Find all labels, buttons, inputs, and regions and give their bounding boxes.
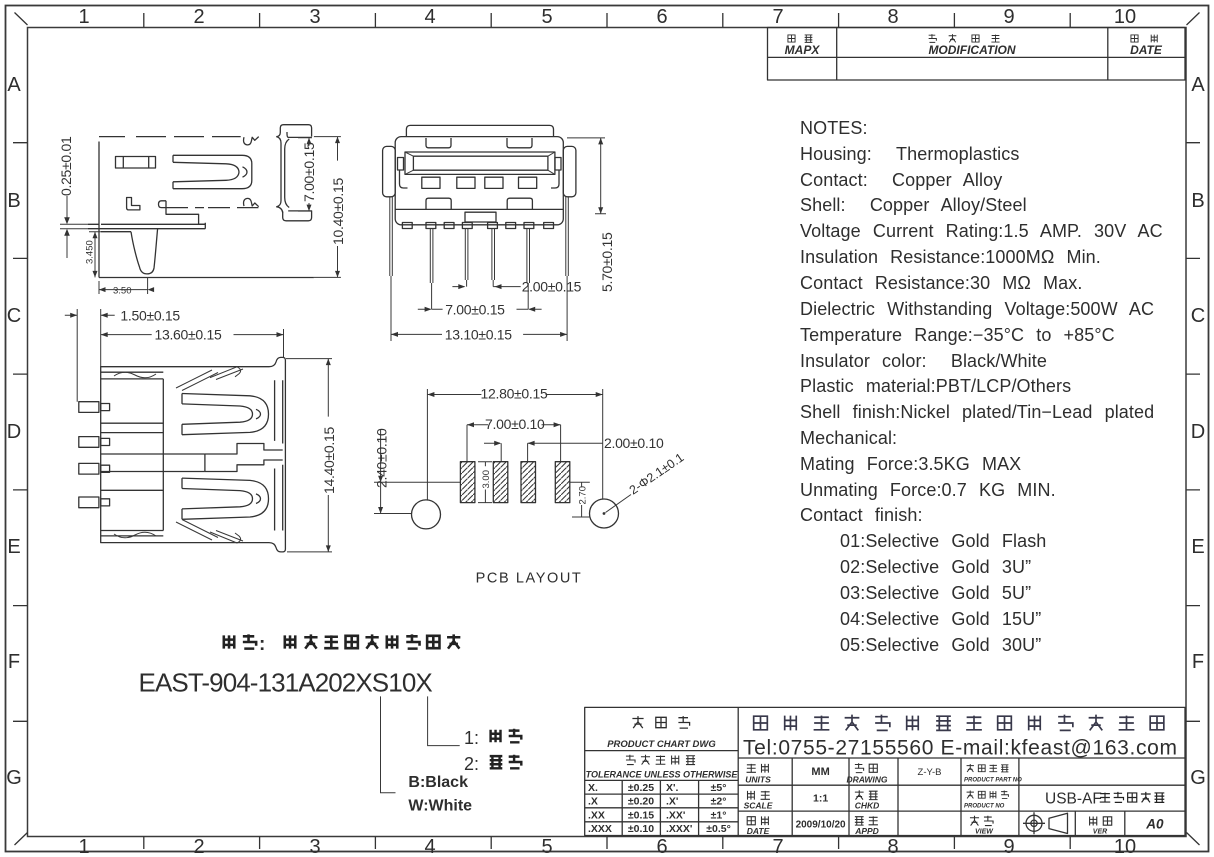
svg-text:EAST-904-131A202XS10X: EAST-904-131A202XS10X [139,668,433,698]
svg-text:±0.15: ±0.15 [628,809,654,821]
svg-text:2.70: 2.70 [578,486,589,505]
svg-text::: : [259,634,265,655]
svg-text:VIEW: VIEW [975,829,994,836]
svg-text:DATE: DATE [747,826,770,836]
svg-text:Insulation Resistance:1000MΩ M: Insulation Resistance:1000MΩ Min. [800,247,1101,267]
svg-text:13.60±0.15: 13.60±0.15 [155,327,222,343]
svg-text:12.80±0.15: 12.80±0.15 [481,386,548,402]
svg-text:±5°: ±5° [711,782,727,794]
svg-text:.XXX: .XXX [588,823,612,835]
svg-text:9: 9 [1003,836,1014,857]
svg-text:D: D [1191,421,1205,443]
svg-text:2:: 2: [464,754,479,774]
svg-text:2.00±0.15: 2.00±0.15 [522,279,582,295]
svg-text:5.70±0.15: 5.70±0.15 [599,232,615,292]
svg-text:Shell: Copper Alloy/Steel: Shell: Copper Alloy/Steel [800,195,1027,215]
svg-text:X'.: X'. [666,782,679,794]
svg-text:0.25±0.01: 0.25±0.01 [58,136,74,196]
svg-text:C: C [7,305,21,327]
svg-text:6: 6 [656,6,667,28]
svg-text:E: E [7,536,20,558]
svg-text:3: 3 [309,6,320,28]
svg-text:Temperature Range:−35°C to +85: Temperature Range:−35°C to +85°C [800,325,1115,345]
svg-text:Z-Y-B: Z-Y-B [918,767,942,778]
svg-text:3: 3 [309,836,320,857]
svg-text:D: D [7,421,21,443]
svg-text:.XX': .XX' [666,809,685,821]
svg-text:±0.10: ±0.10 [628,823,654,835]
svg-text:G: G [6,767,22,789]
svg-text:MODIFICATION: MODIFICATION [928,43,1015,57]
svg-text:8: 8 [887,6,898,28]
svg-text:.XX: .XX [588,809,605,821]
svg-text:X.: X. [588,782,598,794]
svg-text:DATE: DATE [1130,43,1163,57]
svg-text:2: 2 [193,836,204,857]
svg-text:3.50: 3.50 [113,286,132,297]
svg-text:±2°: ±2° [711,796,727,808]
svg-text:±0.25: ±0.25 [628,782,654,794]
svg-text:Housing: Thermoplastics: Housing: Thermoplastics [800,144,1019,164]
svg-text:5: 5 [541,6,552,28]
svg-text:Tel:0755-27155560 E-mail:kfeas: Tel:0755-27155560 E-mail:kfeast@163.com [743,737,1177,760]
svg-text:2.00±0.10: 2.00±0.10 [604,435,664,451]
svg-text:Plastic material:PBT/LCP/Other: Plastic material:PBT/LCP/Others [800,376,1071,396]
svg-text:.XXX': .XXX' [666,823,692,835]
svg-text:1: 1 [78,6,89,28]
svg-text:Contact: Copper Alloy: Contact: Copper Alloy [800,170,1002,190]
svg-text:±0.20: ±0.20 [628,796,654,808]
svg-text:9: 9 [1003,6,1014,28]
svg-text:UNITS: UNITS [745,775,771,785]
svg-text:G: G [1190,767,1206,789]
svg-text:Voltage Current Rating:1.5 AMP: Voltage Current Rating:1.5 AMP. 30V AC [800,221,1163,241]
svg-text:7.00±0.10: 7.00±0.10 [485,416,545,432]
svg-text:W:White: W:White [408,798,472,815]
svg-text:03:Selective Gold 5U”: 03:Selective Gold 5U” [840,583,1031,603]
svg-text:7.00±0.15: 7.00±0.15 [445,301,505,317]
svg-text:B: B [7,190,20,212]
svg-text:3.00: 3.00 [481,470,492,489]
svg-text:B: B [1191,190,1204,212]
svg-text:Unmating Force:0.7 KG MIN.: Unmating Force:0.7 KG MIN. [800,480,1056,500]
svg-text:13.10±0.15: 13.10±0.15 [445,326,512,342]
svg-text:Dielectric Withstanding Voltag: Dielectric Withstanding Voltage:500W AC [800,299,1154,319]
svg-text:DRAWING: DRAWING [846,775,887,785]
svg-text:Insulator color: Black/White: Insulator color: Black/White [800,351,1047,371]
svg-text:PRODUCT NO: PRODUCT NO [964,804,1005,810]
svg-text:1: 1 [78,836,89,857]
svg-text:2009/10/20: 2009/10/20 [796,820,846,831]
svg-text:Contact finish:: Contact finish: [800,505,923,525]
svg-text:PRODUCT PART NO: PRODUCT PART NO [964,778,1022,784]
svg-text:01:Selective Gold Flash: 01:Selective Gold Flash [840,531,1046,551]
svg-text:Mechanical:: Mechanical: [800,428,897,448]
svg-text:05:Selective Gold 30U”: 05:Selective Gold 30U” [840,635,1041,655]
svg-text:04:Selective Gold 15U”: 04:Selective Gold 15U” [840,609,1041,629]
svg-text:.X': .X' [666,796,678,808]
svg-text:.X: .X [588,796,598,808]
svg-text:1.50±0.15: 1.50±0.15 [120,307,180,323]
svg-text:Mating Force:3.5KG MAX: Mating Force:3.5KG MAX [800,454,1021,474]
svg-text:Contact Resistance:30 MΩ Max.: Contact Resistance:30 MΩ Max. [800,273,1082,293]
svg-text:4: 4 [424,6,435,28]
svg-text:SCALE: SCALE [744,801,773,811]
svg-text:APPD: APPD [854,826,879,836]
svg-text:A: A [7,74,21,96]
svg-text:10: 10 [1114,836,1136,857]
svg-text:F: F [8,651,20,673]
svg-text:7: 7 [772,6,783,28]
svg-text:VER: VER [1093,829,1107,836]
svg-text:C: C [1191,305,1205,327]
svg-text:4: 4 [424,836,435,857]
svg-text:NOTES:: NOTES: [800,118,868,138]
svg-text:14.40±0.15: 14.40±0.15 [321,427,337,494]
svg-text:MAPX: MAPX [785,43,821,57]
svg-text:2: 2 [193,6,204,28]
svg-text:02:Selective Gold 3U”: 02:Selective Gold 3U” [840,557,1031,577]
svg-text:10: 10 [1114,6,1136,28]
svg-text:E: E [1191,536,1204,558]
svg-text:USB-AF: USB-AF [1045,791,1102,808]
svg-text:8: 8 [887,836,898,857]
svg-text:7: 7 [772,836,783,857]
svg-text:±0.5°: ±0.5° [706,823,731,835]
svg-text:A0: A0 [1145,817,1164,832]
svg-text:PRODUCT CHART DWG: PRODUCT CHART DWG [607,739,716,750]
svg-text:F: F [1192,651,1204,673]
svg-text:2.40±0.10: 2.40±0.10 [374,428,390,488]
svg-text:TOLERANCE UNLESS OTHERWISE: TOLERANCE UNLESS OTHERWISE [586,770,739,780]
svg-text:10.40±0.15: 10.40±0.15 [330,178,346,245]
svg-text:5: 5 [541,836,552,857]
svg-text:MM: MM [811,766,829,778]
svg-text:CHKD: CHKD [855,801,880,811]
svg-text:1:1: 1:1 [813,793,828,805]
svg-text:1:: 1: [464,728,479,748]
svg-text:±1°: ±1° [711,809,727,821]
svg-text:PCB LAYOUT: PCB LAYOUT [476,571,583,587]
svg-text:A: A [1191,74,1205,96]
svg-text:7.00±0.15: 7.00±0.15 [301,142,317,202]
svg-text:6: 6 [656,836,667,857]
svg-text:3.450: 3.450 [85,240,96,264]
svg-text:B:Black: B:Black [408,774,468,791]
svg-text:Shell finish:Nickel plated/Tin: Shell finish:Nickel plated/Tin−Lead plat… [800,402,1154,422]
